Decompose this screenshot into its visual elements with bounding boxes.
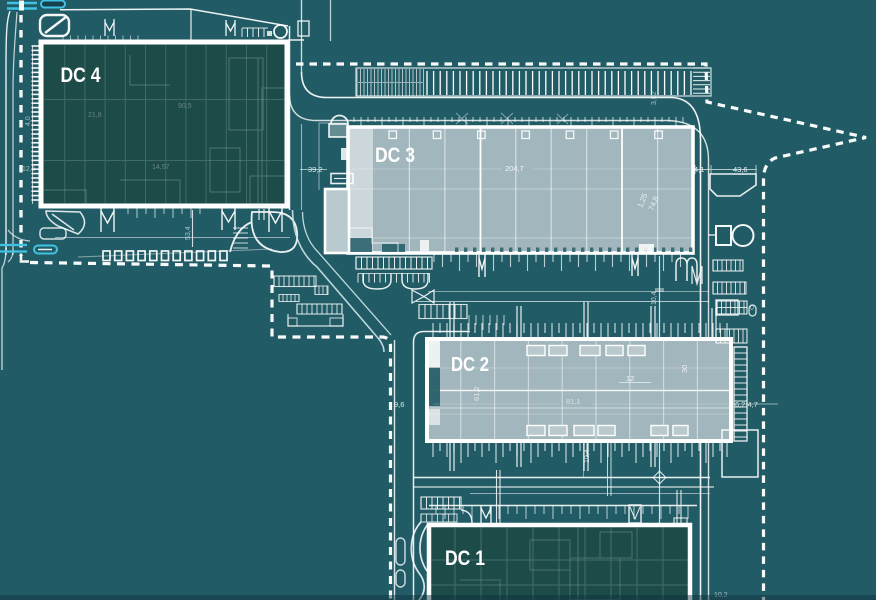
svg-text:21,8: 21,8 [88, 112, 102, 119]
svg-text:204,7: 204,7 [505, 164, 524, 173]
svg-text:43,6: 43,6 [733, 165, 748, 174]
svg-text:9,6: 9,6 [394, 400, 404, 409]
svg-text:DC 1: DC 1 [445, 547, 485, 570]
svg-text:4,0: 4,0 [25, 116, 32, 126]
svg-text:12: 12 [626, 374, 634, 383]
svg-text:DC 3: DC 3 [375, 144, 415, 167]
svg-text:DC 2: DC 2 [451, 354, 489, 376]
svg-text:3,02: 3,02 [651, 91, 658, 105]
svg-text:DC 4: DC 4 [61, 64, 101, 87]
svg-text:12,5: 12,5 [22, 166, 36, 173]
svg-text:81,1: 81,1 [566, 397, 581, 406]
svg-text:4,1: 4,1 [694, 165, 704, 174]
svg-text:53,4: 53,4 [185, 226, 192, 240]
svg-text:30: 30 [680, 365, 689, 373]
svg-text:90,5: 90,5 [178, 103, 192, 110]
svg-text:6,2 4,7: 6,2 4,7 [735, 400, 758, 409]
svg-text:10,4: 10,4 [651, 291, 658, 305]
svg-text:39,2: 39,2 [308, 165, 323, 174]
svg-text:14,57: 14,57 [152, 164, 170, 171]
svg-text:61,2: 61,2 [472, 386, 481, 401]
svg-text:10,4: 10,4 [584, 449, 591, 463]
